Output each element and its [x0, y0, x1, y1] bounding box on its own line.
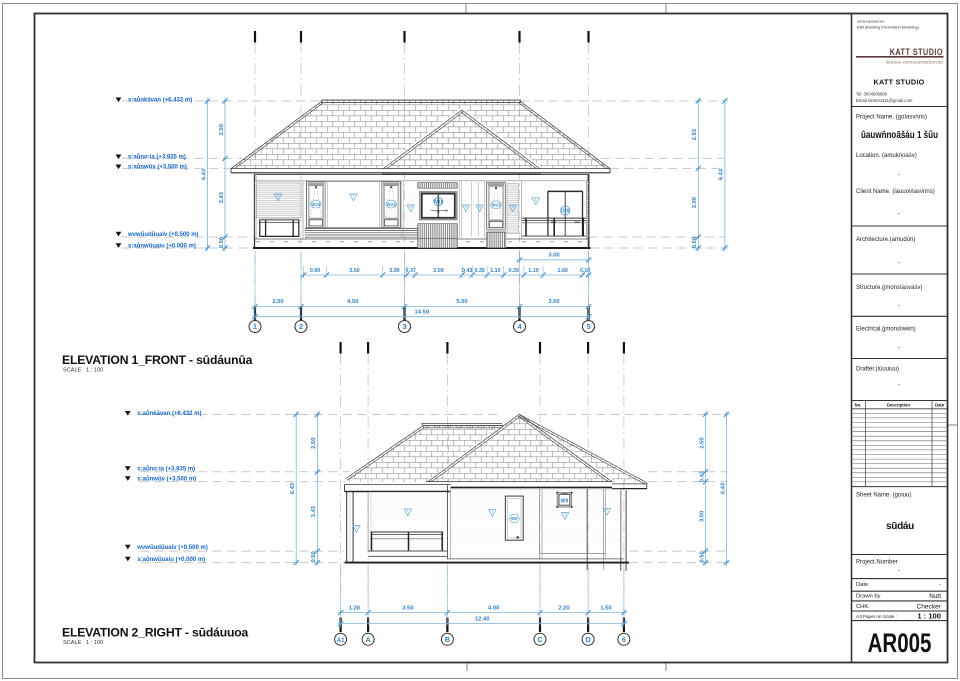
svg-text:SCALE 1 : 100: SCALE 1 : 100 — [63, 640, 103, 646]
svg-text:A: A — [365, 635, 371, 644]
svg-text:14.50: 14.50 — [415, 310, 430, 316]
svg-text:1: 1 — [253, 322, 257, 331]
svg-text:0.90: 0.90 — [310, 268, 320, 274]
svg-text:0.50: 0.50 — [699, 551, 705, 562]
svg-text:2.50: 2.50 — [699, 437, 705, 448]
svg-text:1.50: 1.50 — [600, 605, 611, 611]
svg-text:2.00: 2.00 — [272, 299, 283, 305]
svg-text:12.40: 12.40 — [475, 616, 490, 622]
svg-text:s:aůnkăvan (+6.432 m): s:aůnkăvan (+6.432 m) — [137, 410, 201, 417]
svg-text:Nutt: Nutt — [929, 593, 941, 600]
svg-text:-: - — [898, 171, 900, 178]
svg-text:s:aůnwũuaiu (+0.000 m): s:aůnwũuaiu (+0.000 m) — [137, 556, 205, 563]
svg-text:Tel. 0834506696: Tel. 0834506696 — [856, 92, 888, 97]
svg-text:1 : 100: 1 : 100 — [917, 612, 941, 621]
svg-text:0.35: 0.35 — [509, 268, 519, 274]
svg-text:W23: W23 — [387, 202, 397, 207]
svg-text:2.50: 2.50 — [219, 124, 225, 135]
svg-text:AR005: AR005 — [868, 628, 932, 658]
svg-text:sūdáu: sūdáu — [886, 521, 914, 532]
svg-text:Architecture.(amudún): Architecture.(amudún) — [856, 237, 915, 243]
svg-text:-: - — [898, 210, 900, 217]
svg-text:2.00: 2.00 — [433, 268, 443, 274]
svg-text:6: 6 — [622, 635, 626, 644]
svg-text:Structure.(jmonsIasvaśv): Structure.(jmonsIasvaśv) — [856, 285, 922, 291]
svg-text:3.43: 3.43 — [311, 505, 317, 517]
svg-text:C: C — [537, 635, 543, 644]
svg-text:ooniuuaosus:uu: ooniuuaosus:uu — [857, 19, 884, 24]
svg-text:Project.Number: Project.Number — [856, 560, 898, 566]
svg-text:-: - — [898, 568, 900, 575]
svg-text:D: D — [585, 635, 590, 644]
svg-text:wvwũudũuaiv (+0.500 m): wvwũudũuaiv (+0.500 m) — [136, 545, 208, 551]
svg-text:s:aůnkăvan (+6.432 m): s:aůnkăvan (+6.432 m) — [128, 97, 192, 104]
svg-text:W23: W23 — [491, 203, 501, 208]
svg-text:-: - — [898, 382, 900, 389]
svg-text:1.60: 1.60 — [558, 268, 568, 274]
svg-text:Electrical.(jmonsIwẃn): Electrical.(jmonsIwẃn) — [856, 327, 916, 333]
svg-text:s:aůno:ia (+3.935 m): s:aůno:ia (+3.935 m) — [128, 154, 186, 161]
svg-text:2.50: 2.50 — [311, 438, 317, 449]
svg-text:Project Name. (goIasvnns): Project Name. (goIasvnns) — [856, 115, 927, 121]
svg-text:Description: Description — [887, 402, 910, 407]
svg-text:ELEVATION 1_FRONT - sūdáunūa: ELEVATION 1_FRONT - sūdáunūa — [62, 353, 253, 367]
svg-text:s:aůno:ia (+3.935 m): s:aůno:ia (+3.935 m) — [137, 466, 195, 473]
svg-text:Date: Date — [935, 402, 945, 407]
svg-text:B: B — [445, 635, 450, 644]
svg-text:CHK.: CHK. — [856, 604, 870, 610]
svg-text:0.50: 0.50 — [219, 237, 225, 248]
svg-text:A1: A1 — [337, 637, 345, 644]
svg-text:0.43: 0.43 — [699, 470, 705, 482]
svg-text:3: 3 — [402, 322, 406, 331]
svg-text:iūuuiuu-ooniuuamaŭunssu: iūuuiuu-ooniuuamaŭunssu — [886, 60, 944, 66]
svg-text:SCALE 1 : 100: SCALE 1 : 100 — [63, 367, 103, 373]
svg-text:KATT STUDIO: KATT STUDIO — [890, 47, 943, 57]
svg-text:0.37: 0.37 — [406, 268, 416, 274]
svg-text:ûauwňnoāšáu 1 šűu: ûauwňnoāšáu 1 šűu — [861, 129, 938, 140]
svg-text:W9: W9 — [511, 516, 518, 521]
svg-text:Client Name. (iauuovIasvnns): Client Name. (iauuovIasvnns) — [856, 189, 935, 195]
svg-text:Checker: Checker — [916, 604, 941, 611]
svg-text:Drawn by: Drawn by — [856, 594, 881, 600]
svg-text:s:aůnwũuaiu (+0.000 m): s:aůnwũuaiu (+0.000 m) — [128, 243, 196, 250]
svg-text:-: - — [898, 302, 900, 309]
svg-text:3.00: 3.00 — [692, 197, 698, 208]
svg-text:Sheet Name. (goiuu): Sheet Name. (goiuu) — [856, 493, 911, 499]
svg-text:No.: No. — [855, 402, 862, 407]
svg-text:1.10: 1.10 — [528, 268, 538, 274]
svg-text:2.20: 2.20 — [558, 605, 569, 611]
svg-text:5: 5 — [586, 322, 590, 331]
svg-text:2: 2 — [299, 322, 303, 331]
svg-text:W23: W23 — [311, 202, 321, 207]
svg-text:6.43: 6.43 — [719, 168, 725, 180]
svg-text:3.00: 3.00 — [548, 253, 559, 259]
svg-text:4.50: 4.50 — [347, 299, 358, 305]
svg-text:1.20: 1.20 — [349, 605, 360, 611]
svg-text:wvwũudũuaiv (+0.500 m): wvwũudũuaiv (+0.500 m) — [127, 232, 199, 238]
svg-text:5.00: 5.00 — [456, 299, 467, 305]
svg-text:2.93: 2.93 — [692, 128, 698, 140]
svg-text:1.10: 1.10 — [490, 268, 500, 274]
svg-text:W9: W9 — [561, 498, 569, 504]
svg-text:-: - — [898, 344, 900, 351]
svg-text:BIM (Building Information Mode: BIM (Building Information Modeling) — [857, 25, 920, 30]
svg-text:4.00: 4.00 — [488, 605, 499, 611]
svg-text:3.50: 3.50 — [402, 605, 413, 611]
svg-text:6.43: 6.43 — [201, 168, 207, 180]
svg-text:Location. (amukrioaśv): Location. (amukrioaśv) — [856, 153, 917, 159]
svg-text:s:aůnwŭv (+3.500 m): s:aůnwŭv (+3.500 m) — [137, 476, 196, 483]
svg-text:KATT STUDIO: KATT STUDIO — [873, 78, 924, 87]
svg-text:-: - — [939, 582, 941, 588]
svg-text:0.43: 0.43 — [462, 268, 472, 274]
svg-text:0.90: 0.90 — [389, 268, 399, 274]
svg-text:3.00: 3.00 — [548, 299, 559, 305]
svg-text:s:aůnwŭv (+3.500 m): s:aůnwŭv (+3.500 m) — [128, 164, 187, 171]
svg-text:2.50: 2.50 — [349, 268, 359, 274]
svg-text:A3 Paper on Scale :: A3 Paper on Scale : — [856, 614, 897, 619]
svg-text:D28: D28 — [561, 209, 570, 215]
svg-text:6.43: 6.43 — [290, 482, 296, 494]
svg-text:Date: Date — [856, 582, 868, 588]
svg-text:3.00: 3.00 — [699, 511, 705, 522]
svg-text:Email.ntnntn1111@gmail.com: Email.ntnntn1111@gmail.com — [856, 98, 913, 103]
svg-text:6.43: 6.43 — [720, 482, 726, 494]
svg-text:ELEVATION 2_RIGHT - sūdáuuoa: ELEVATION 2_RIGHT - sūdáuuoa — [62, 626, 249, 640]
svg-text:0.50: 0.50 — [311, 551, 317, 562]
svg-text:Drafter.(iūuuiuu): Drafter.(iūuuiuu) — [856, 366, 899, 372]
svg-text:0.50: 0.50 — [692, 237, 698, 248]
svg-text:3.43: 3.43 — [219, 191, 225, 203]
svg-text:-: - — [898, 260, 900, 267]
svg-text:W18: W18 — [433, 200, 444, 206]
svg-text:0.35: 0.35 — [475, 268, 485, 274]
